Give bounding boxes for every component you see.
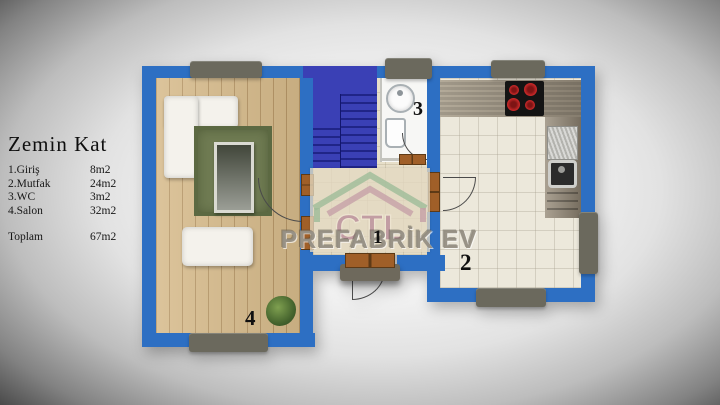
stair-top-opening <box>303 66 377 78</box>
salon-bottom-window <box>189 333 268 352</box>
kitchen-top-window <box>491 60 545 78</box>
room-number-wc: 3 <box>413 98 423 121</box>
kitchen-sink-basin <box>548 160 577 188</box>
coffee-table <box>214 142 254 213</box>
stair-steps-right <box>340 94 377 168</box>
corner-sofa-side <box>164 96 198 178</box>
wc-wall-segment <box>380 158 401 161</box>
loveseat <box>182 227 253 266</box>
wall-left <box>142 66 156 347</box>
kitchen-door-leaf-line <box>443 177 476 178</box>
entrance-door <box>345 253 395 268</box>
sink-faucet <box>558 166 565 173</box>
burner <box>525 100 535 110</box>
salon-top-window <box>190 61 262 78</box>
wall-hall-kitchen-upper <box>427 66 440 172</box>
wc-sink <box>386 84 415 113</box>
burner <box>524 83 537 96</box>
wc-sink-drain <box>397 90 403 96</box>
room-number-entrance: 1 <box>373 227 383 249</box>
stair-divider <box>340 94 341 168</box>
burner <box>507 98 520 111</box>
kitchen-right-window <box>579 212 598 274</box>
room-number-salon: 4 <box>245 306 256 331</box>
burner <box>509 85 519 95</box>
kitchen-bottom-window <box>476 288 546 307</box>
sink-drainboard <box>547 126 578 160</box>
wc-door-threshold <box>399 154 426 165</box>
wc-top-window <box>385 58 432 79</box>
floorplan-image: Zemin Kat 1.Giriş 8m2 2.Mutfak 24m2 3.WC… <box>0 0 720 405</box>
counter-drawers <box>547 192 578 216</box>
